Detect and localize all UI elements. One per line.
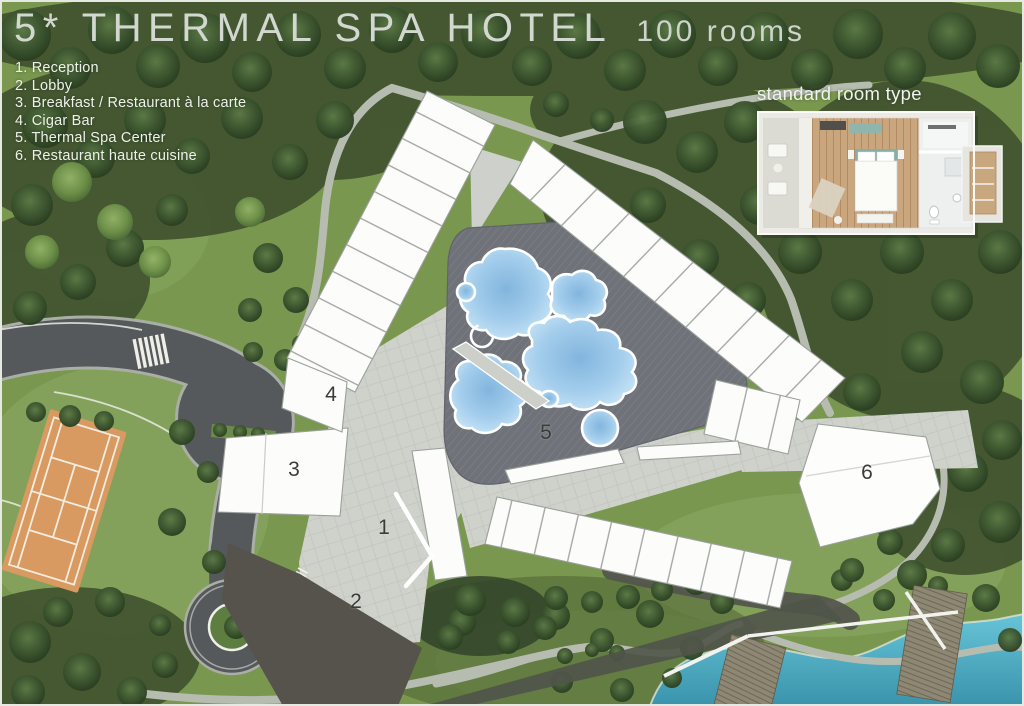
room-tv-console — [820, 121, 846, 130]
breakfast-restaurant-building — [218, 428, 348, 516]
room-entry-wardrobe — [962, 146, 1002, 222]
room-closet — [799, 118, 812, 228]
room-sofa — [850, 123, 882, 133]
room-bench — [857, 214, 893, 223]
site-plan-canvas — [0, 0, 1024, 706]
room-bed — [848, 149, 904, 211]
site-plan: 5* THERMAL SPA HOTEL 100 rooms 1. Recept… — [0, 0, 1024, 706]
room-balcony — [763, 118, 799, 228]
room-inset — [758, 112, 1002, 238]
